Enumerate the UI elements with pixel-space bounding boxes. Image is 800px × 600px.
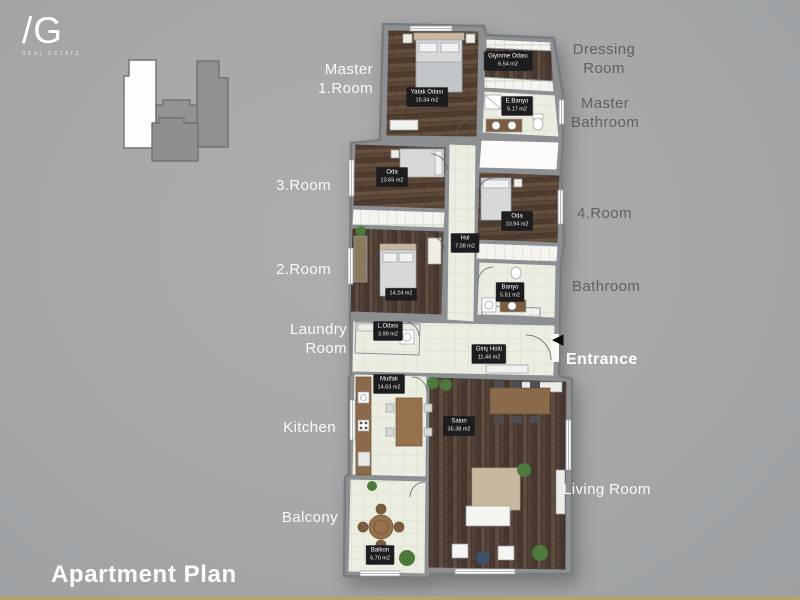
badge-master-bath: E.Banyo 5.17 m2 [502, 97, 533, 116]
label-entrance: Entrance [566, 350, 638, 369]
badge-bathroom: Banyo 5.51 m2 [496, 283, 524, 302]
badge-balcony: Balkon 6.70 m2 [366, 546, 394, 565]
closet-row-room3 [352, 209, 445, 228]
room-unlabeled [479, 140, 559, 170]
label-master-bathroom: Master Bathroom [565, 94, 645, 132]
brand-logo-subtitle: REAL ESTATE [22, 51, 81, 57]
label-3room: 3.Room [246, 176, 331, 195]
badge-master-bedroom: Yatak Odası 15.34 m2 [407, 88, 448, 107]
entrance-arrow-icon: ◀ [552, 332, 564, 348]
label-4room: 4.Room [577, 204, 632, 223]
label-laundry-room: Laundry Room [250, 320, 347, 358]
closet-row-room4 [476, 243, 558, 262]
label-living-room: Living Room [563, 480, 651, 499]
badge-laundry: L.Odası 3.99 m2 [373, 322, 402, 341]
badge-room2: 14.24 m2 [386, 288, 417, 300]
label-bathroom: Bathroom [572, 277, 640, 296]
badge-hall: Hol 7.08 m2 [451, 234, 479, 253]
badge-room4: Oda 10.94 m2 [502, 212, 533, 231]
page-title: Apartment Plan [51, 561, 237, 589]
brand-logo: /G REAL ESTATE [22, 12, 81, 57]
badge-living: Salon 35.38 m2 [444, 417, 475, 436]
badge-room3: Oda 13.65 m2 [377, 168, 408, 187]
label-2room: 2.Room [246, 260, 331, 279]
gold-strip [0, 596, 800, 600]
floor-plan [0, 0, 800, 600]
badge-dressing: Giyinme Odası 6.54 m2 [484, 52, 532, 71]
label-balcony: Balcony [250, 508, 338, 527]
label-master-1room: Master 1.Room [280, 60, 373, 98]
entrance-cabinet [486, 365, 528, 373]
label-kitchen: Kitchen [250, 418, 336, 437]
label-dressing-room: Dressing Room [565, 40, 643, 78]
brand-logo-mark: /G [22, 12, 81, 50]
badge-entrance-hall: Giriş Holü 11.44 m2 [472, 345, 506, 364]
apartment-plan-page: /G REAL ESTATE Master 1.Room 3.Room 2.Ro… [0, 0, 800, 600]
badge-kitchen: Mutfak 14.63 m2 [374, 375, 405, 394]
